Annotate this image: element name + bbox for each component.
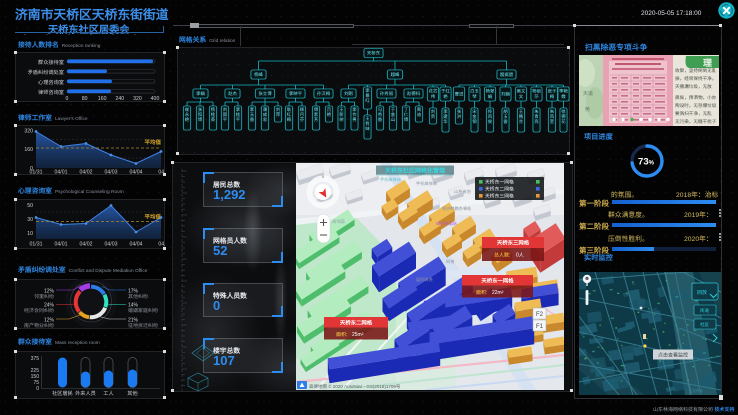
svg-text:外来人员: 外来人员 [75,390,96,397]
svg-text:李映平: 李映平 [289,91,303,96]
svg-text:杨丽: 杨丽 [532,89,541,94]
svg-text:李艳: 李艳 [559,89,568,94]
svg-text:收聚，坚持倒到无乱: 收聚，坚持倒到无乱 [675,68,717,73]
svg-text:矛盾纠纷调处室: 矛盾纠纷调处室 [28,69,64,76]
svg-text:04/03: 04/03 [105,242,118,248]
svg-text:04/04: 04/04 [130,170,143,176]
svg-text:山东省地: 山东省地 [454,189,472,194]
svg-text:忠: 忠 [263,117,268,122]
svg-text:总人数:: 总人数: [494,252,510,259]
svg-text:天桥东社区网格化管理: 天桥东社区网格化管理 [385,167,445,175]
svg-text:芳: 芳 [314,117,319,122]
svg-text:琴: 琴 [472,94,477,99]
svg-text:高德地图 © 2020 AutoNavi - GS(2018: 高德地图 © 2020 AutoNavi - GS(2018)1709号 [309,383,401,389]
svg-text:04/01: 04/01 [55,170,68,176]
svg-text:社区: 社区 [700,322,709,327]
svg-text:回放: 回放 [697,289,707,296]
svg-text:婚姻家庭纠纷: 婚姻家庭纠纷 [128,307,158,314]
svg-text:其他纠纷: 其他纠纷 [128,293,148,300]
svg-text:面积:: 面积: [336,331,347,338]
svg-text:73%: 73% [638,157,655,168]
svg-text:萍: 萍 [276,112,281,117]
svg-text:孙秀丽: 孙秀丽 [380,91,394,96]
svg-text:平均值: 平均值 [144,214,161,221]
svg-text:平均值: 平均值 [144,139,161,146]
svg-text:孙汉梅: 孙汉梅 [317,91,331,96]
svg-text:50: 50 [27,203,33,209]
svg-text:0人: 0人 [516,252,524,259]
svg-text:艳: 艳 [185,117,190,122]
svg-text:艳: 艳 [443,94,448,99]
svg-text:莎: 莎 [534,94,539,99]
svg-text:赵德科: 赵德科 [407,91,421,96]
svg-text:网格: 网格 [446,259,455,264]
svg-text:01/31: 01/31 [30,242,43,248]
svg-text:320: 320 [24,129,33,135]
svg-text:天道: 天道 [583,90,593,97]
svg-text:超峰: 超峰 [391,72,400,77]
svg-text:社区居民: 社区居民 [52,390,73,397]
svg-text:香: 香 [378,117,383,122]
svg-text:李娟: 李娟 [196,91,205,96]
svg-text:俊: 俊 [488,119,493,124]
svg-text:振，经常保持干净。: 振，经常保持干净。 [675,76,716,81]
svg-text:无污染，无糖干扰子: 无污染，无糖干扰子 [675,119,717,124]
svg-text:F2: F2 [536,312,544,318]
svg-text:邻里纠纷: 邻里纠纷 [34,293,54,300]
svg-text:刘娟: 刘娟 [501,92,510,97]
svg-text:04/04: 04/04 [130,242,143,248]
svg-text:工人: 工人 [103,390,113,397]
svg-text:400: 400 [151,96,160,102]
svg-text:街道: 街道 [700,308,709,313]
svg-text:0: 0 [36,386,39,392]
svg-text:男: 男 [352,117,356,122]
svg-text:维也纳酒店: 维也纳酒店 [436,221,457,226]
svg-text:80: 80 [82,96,88,102]
svg-text:树: 树 [339,117,344,122]
svg-text:手机维修店: 手机维修店 [380,177,401,182]
svg-text:天桥东一网格: 天桥东一网格 [481,278,514,285]
svg-text:375: 375 [31,356,40,362]
svg-text:文: 文 [519,94,524,99]
svg-text:04/03: 04/03 [105,170,118,176]
svg-text:妹: 妹 [365,126,370,131]
svg-text:红: 红 [365,98,370,103]
svg-text:曹进: 曹进 [455,92,464,97]
svg-text:平: 平 [236,117,241,122]
svg-text:天撒漏垃圾，无放: 天撒漏垃圾，无放 [675,84,712,89]
svg-text:吴文: 吴文 [517,89,526,94]
svg-text:04/02: 04/02 [80,242,93,248]
svg-text:香: 香 [250,117,255,122]
svg-text:理: 理 [703,58,712,68]
svg-text:04/01: 04/01 [55,242,68,248]
svg-text:晨侯，预洒物，小办: 晨侯，预洒物，小办 [675,95,717,100]
svg-text:兰: 兰 [519,119,524,124]
svg-text:点击查看监控: 点击查看监控 [658,352,688,359]
svg-text:经济合同纠纷: 经济合同纠纷 [24,307,54,314]
svg-text:霞: 霞 [561,94,566,99]
svg-text:迪: 迪 [417,112,422,117]
svg-text:至: 至 [550,119,555,124]
svg-text:贵: 贵 [431,114,436,119]
svg-text:0: 0 [66,96,69,102]
svg-text:面积:: 面积: [476,289,487,296]
svg-text:240: 240 [115,96,124,102]
svg-text:征地拆迁纠纷: 征地拆迁纠纷 [128,322,158,329]
svg-text:博: 博 [404,117,409,122]
svg-text:房产物业纠纷: 房产物业纠纷 [24,322,54,329]
svg-text:天桥东二网格: 天桥东二网格 [340,320,373,327]
svg-text:要溅扫干净，无乱: 要溅扫干净，无乱 [675,111,712,116]
svg-text:平: 平 [223,117,228,122]
svg-text:30: 30 [27,217,33,223]
svg-text:居民政务: 居民政务 [416,277,434,282]
svg-text:赵杰: 赵杰 [228,91,237,96]
svg-text:梅: 梅 [550,94,555,99]
svg-text:160: 160 [24,147,33,153]
svg-text:25m²: 25m² [352,332,364,338]
svg-text:英: 英 [211,117,216,122]
svg-text:白玉: 白玉 [470,89,479,94]
svg-text:娟: 娟 [488,94,493,99]
svg-text:梅: 梅 [287,117,292,122]
svg-text:天桥东三网格: 天桥东三网格 [485,192,514,199]
svg-text:天桥东: 天桥东 [367,51,381,56]
svg-text:花芯: 花芯 [429,89,438,94]
svg-text:320: 320 [133,96,142,102]
svg-text:手机维修店: 手机维修店 [416,181,437,186]
svg-text:华: 华 [443,119,448,124]
svg-text:律师咨询室: 律师咨询室 [38,89,64,96]
svg-text:群众接待室: 群众接待室 [38,59,64,66]
svg-text:博: 博 [198,117,203,122]
svg-text:卫星图例: 卫星图例 [689,389,703,393]
svg-text:天桥东二网格: 天桥东二网格 [485,185,514,192]
svg-text:04/02: 04/02 [80,170,93,176]
svg-text:刘刚: 刘刚 [344,91,353,96]
svg-text:山: 山 [391,117,395,122]
svg-text:杨峰: 杨峰 [254,72,263,77]
svg-text:天桥东三网格: 天桥东三网格 [497,240,530,247]
svg-text:亮: 亮 [534,119,539,124]
svg-text:张立博: 张立博 [258,91,272,96]
svg-text:势: 势 [585,106,590,113]
svg-text:天桥东一网格: 天桥东一网格 [485,178,514,185]
svg-text:于红: 于红 [441,89,450,94]
svg-text:钢: 钢 [472,119,477,124]
svg-text:心理咨询室: 心理咨询室 [38,79,64,86]
svg-text:花: 花 [561,119,566,124]
svg-text:160: 160 [98,96,107,102]
svg-text:艳: 艳 [327,112,332,117]
svg-text:01/31: 01/31 [30,170,43,176]
svg-text:洪: 洪 [457,114,462,119]
svg-text:香: 香 [503,119,508,124]
svg-text:清华园: 清华园 [332,219,345,224]
svg-text:F1: F1 [536,324,544,330]
svg-text:杨翠: 杨翠 [486,89,495,94]
svg-text:其他: 其他 [127,390,137,397]
svg-text:伟: 伟 [431,94,436,99]
svg-text:10: 10 [27,231,33,237]
svg-text:22m²: 22m² [492,290,504,296]
svg-text:张子: 张子 [548,89,557,94]
svg-text:援护韩路办事处: 援护韩路办事处 [442,206,472,211]
svg-text:芬: 芬 [300,117,305,122]
svg-text:陶设时，无存爆垃圾: 陶设时，无存爆垃圾 [675,103,717,108]
svg-text:超据盟: 超据盟 [500,72,514,77]
